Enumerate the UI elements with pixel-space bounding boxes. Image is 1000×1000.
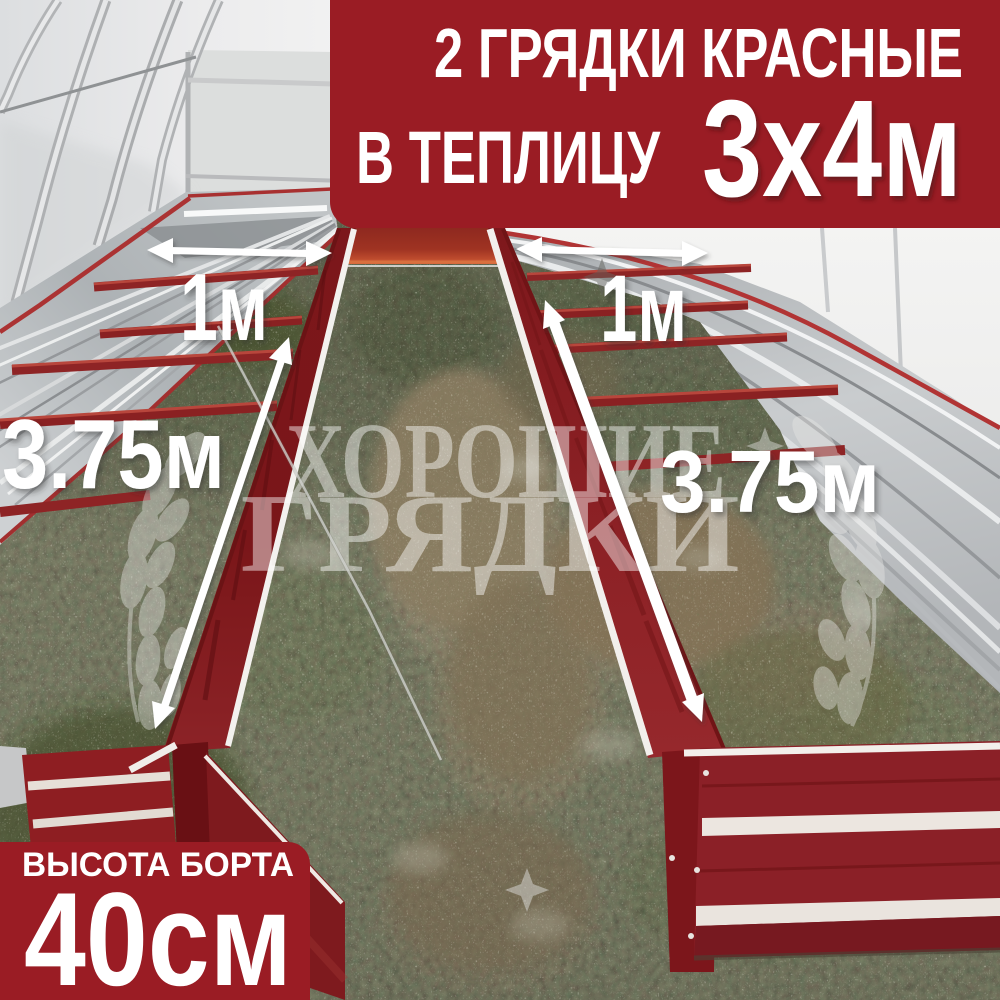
- svg-text:В ТЕПЛИЦУ: В ТЕПЛИЦУ: [356, 116, 661, 199]
- svg-text:3.75м: 3.75м: [2, 399, 225, 509]
- svg-text:3х4м: 3х4м: [702, 72, 962, 226]
- svg-text:1м: 1м: [180, 254, 268, 361]
- svg-text:40см: 40см: [24, 866, 292, 1000]
- svg-text:1м: 1м: [600, 256, 687, 362]
- svg-text:3.75м: 3.75м: [660, 432, 880, 531]
